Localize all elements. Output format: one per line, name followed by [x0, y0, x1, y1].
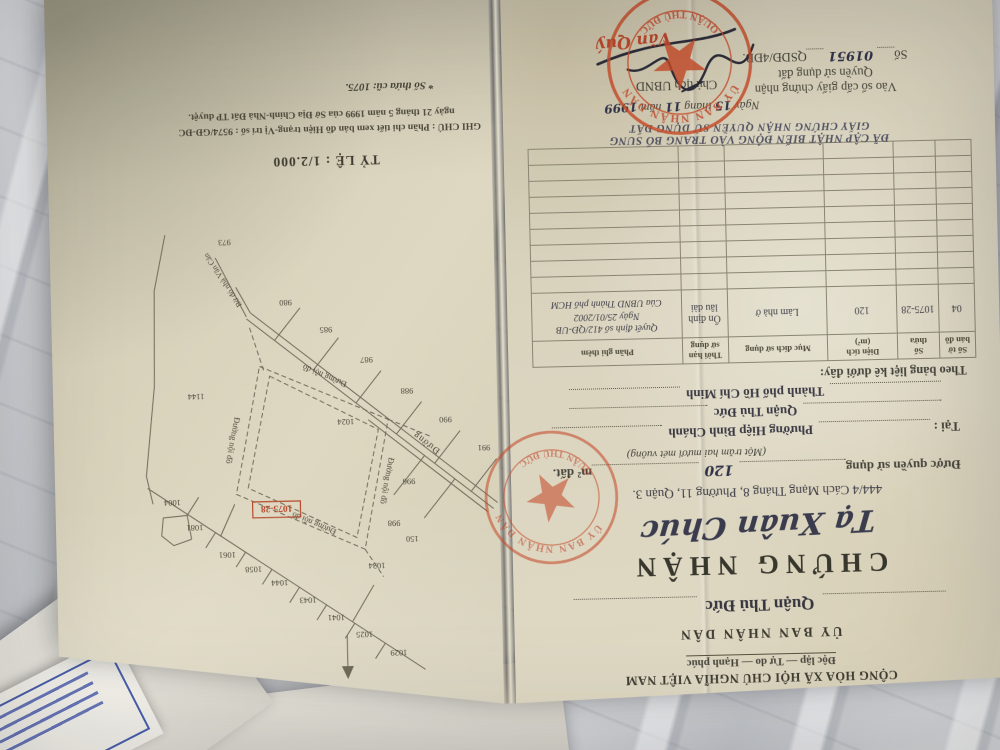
parcel-label: 1144 — [187, 392, 205, 402]
cell-area: 120 — [827, 285, 898, 335]
official-seal-stamp-fold: ỦY BAN NHÂN DÂN QUẬN THỦ ĐỨC — [474, 420, 629, 575]
parcel-label: 987 — [360, 355, 373, 365]
svg-text:QUẬN THỦ ĐỨC: QUẬN THỦ ĐỨC — [515, 443, 596, 477]
motto-text: Độc lập — Tự do — Hạnh phúc — [686, 652, 835, 669]
issuer-name: Quận Thủ Đức — [697, 593, 823, 616]
highlighted-parcel-number: 1075-28 — [260, 502, 292, 513]
parcel-label: 1044 — [270, 578, 288, 588]
parcel-label: 980 — [279, 298, 292, 308]
parcel-label: 1025 — [356, 630, 373, 640]
location-ward: Phường Hiệp Bình Chánh — [662, 421, 819, 441]
location-city: Thành phố Hồ Chí Minh — [680, 383, 830, 402]
cell-parcel-no: 1075-28 — [896, 284, 939, 333]
map-note-line1: GHI CHÚ : Phần chi tiết xem bản đồ Hiện … — [151, 120, 481, 138]
official-seal-stamp: ỦY BAN NHÂN DÂN QUẬN THỦ ĐỨC — [602, 0, 757, 140]
parcel-label: 990 — [439, 415, 452, 425]
registry-block: Vào sổ cấp giấy chứng nhận Quyền sử dụng… — [742, 46, 908, 97]
area-value-handwritten: 120 — [698, 461, 740, 478]
parcel-label: 998 — [388, 519, 401, 529]
parcel-label: 1043 — [300, 595, 317, 605]
col-header: Diện tích (m²) — [828, 333, 898, 361]
col-header: Mục đích sử dụng — [728, 335, 828, 363]
land-parcel-table: Số tờ bản đồ Số thửa Diện tích (m²) Mục … — [528, 139, 977, 368]
certificate-cover-page: CỘNG HÒA XÃ HỘI CHỦ NGHĨA VIỆT NAM Độc l… — [500, 0, 1000, 706]
parcel-label: 973 — [218, 238, 231, 248]
inner-road-label: Đường nội đồ — [378, 457, 397, 505]
location-district: Quận Thủ Đức — [708, 403, 804, 421]
internal-dashed-roads — [233, 321, 434, 580]
issuer-label: ỦY BAN NHÂN DÂN — [514, 619, 1000, 646]
cadastral-map: Đường 991 990 988 987 985 980 — [47, 209, 506, 689]
at-label: Tại : — [933, 418, 960, 435]
parcel-label: 996 — [403, 476, 416, 486]
parcel-label: 1081 — [186, 523, 203, 533]
inner-road-label: Đường nội đồ — [301, 362, 348, 389]
stamp-arc-bottom-text: QUẬN THỦ ĐỨC — [515, 443, 596, 477]
grant-label: Được quyền sử dụng — [846, 456, 961, 475]
cell-sheet-no: 04 — [938, 283, 975, 332]
parcel-label: 1061 — [219, 550, 236, 560]
old-parcel-note: * Số thửa cũ: 1075. — [345, 79, 434, 93]
road-label: Đường — [411, 429, 442, 456]
col-header: Phần ghi thêm — [532, 338, 682, 367]
registry-line1: Vào sổ cấp giấy chứng nhận — [743, 78, 908, 97]
inner-road-label: Đường nội đồ — [290, 510, 337, 537]
inner-road-label: Đường nội đồ — [224, 416, 243, 464]
north-arrow-icon — [341, 635, 354, 679]
parcel-label: 1004 — [163, 498, 181, 508]
issuer-name-line: Quận Thủ Đức — [514, 589, 1000, 620]
cell-notes: Quyết định số 412/QĐ-UB Ngày 25/01/2002 … — [531, 290, 682, 341]
parcel-label: 1041 — [328, 612, 345, 622]
map-scale-label: TỶ LỆ : 1/2.000 — [272, 151, 380, 169]
col-header: Thời hạn sử dụng — [682, 337, 728, 364]
table-intro: Theo bảng liệt kê dưới đây: — [820, 362, 967, 380]
photo-scene: CỘNG HÒA XÃ HỘI CHỦ NGHĨA VIỆT NAM Độc l… — [0, 0, 1000, 750]
parcel-label: 1058 — [245, 565, 262, 575]
parcel-label: 985 — [320, 325, 333, 335]
land-certificate-document: CỘNG HÒA XÃ HỘI CHỦ NGHĨA VIỆT NAM Độc l… — [44, 0, 1000, 717]
col-header: Số tờ bản đồ — [939, 331, 976, 358]
cell-purpose: Làm nhà ở — [727, 287, 828, 337]
cadastral-map-page: Đường 991 990 988 987 985 980 — [44, 0, 504, 717]
parcel-label: 1029 — [390, 648, 407, 658]
registry-number-line: Số 01951 QSDĐ/4ĐB. — [742, 46, 907, 65]
col-header: Số thửa — [897, 332, 940, 359]
registry-no-value-handwritten: 01951 — [824, 47, 878, 63]
parcel-label: 1024 — [337, 417, 355, 427]
path-label: Bờ đỏ nhà Văn Cán — [202, 251, 244, 308]
parcel-label: 150 — [406, 534, 419, 544]
parcel-label: 988 — [401, 386, 414, 396]
registry-no-label: Số — [894, 46, 908, 61]
cell-duration: Ổn định lâu dài — [681, 289, 728, 338]
table-data-row: 04 1075-28 120 Làm nhà ở Ổn định lâu dài… — [531, 283, 975, 341]
